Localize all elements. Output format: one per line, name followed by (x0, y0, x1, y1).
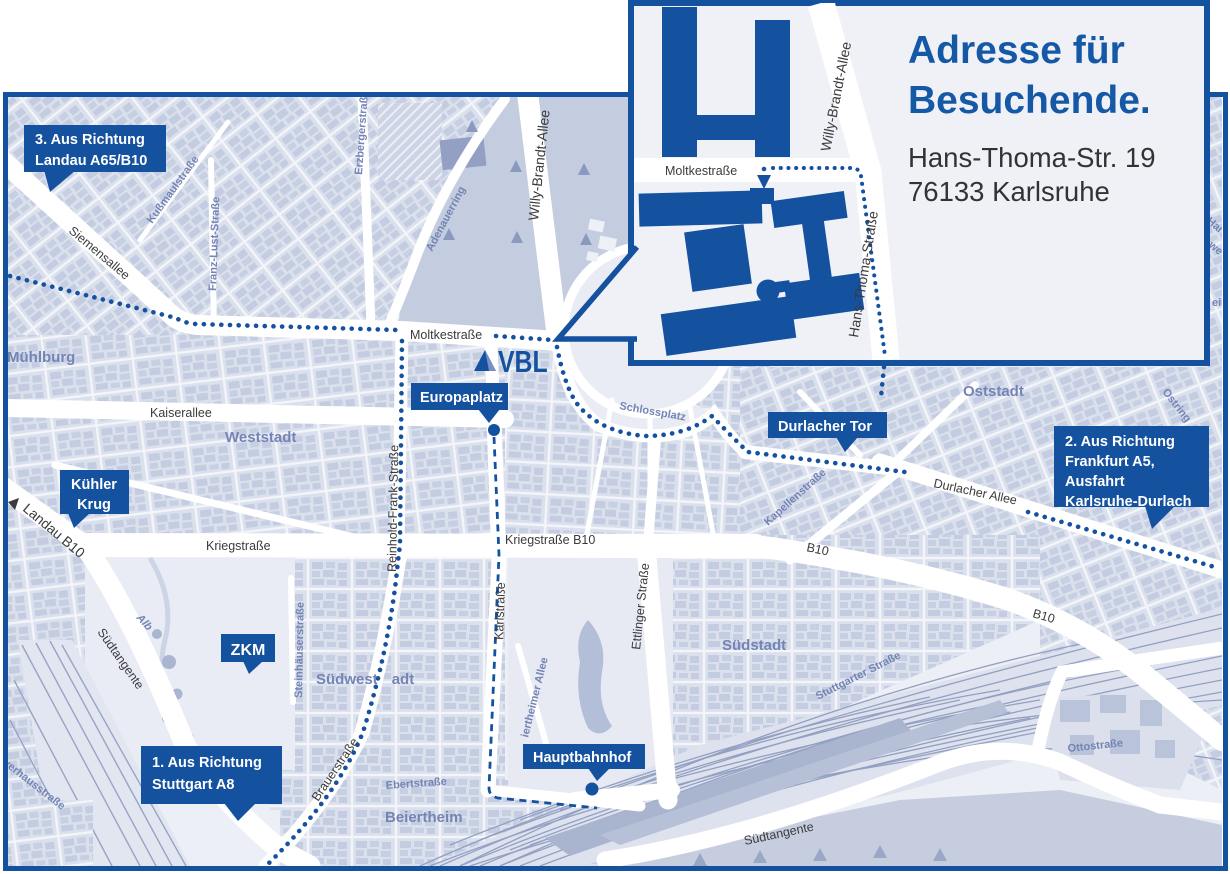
svg-text:Moltkestraße: Moltkestraße (410, 328, 482, 342)
svg-text:Frankfurt A5,: Frankfurt A5, (1065, 454, 1155, 470)
svg-text:1. Aus Richtung: 1. Aus Richtung (152, 755, 262, 771)
svg-text:Moltkestraße: Moltkestraße (665, 164, 737, 178)
svg-text:76133 Karlsruhe: 76133 Karlsruhe (908, 176, 1110, 207)
svg-text:Beiertheim: Beiertheim (385, 809, 463, 826)
svg-text:2. Aus Richtung: 2. Aus Richtung (1065, 434, 1175, 450)
svg-text:Kriegstraße B10: Kriegstraße B10 (505, 533, 595, 547)
svg-text:3. Aus Richtung: 3. Aus Richtung (35, 132, 145, 148)
svg-text:Krug: Krug (77, 497, 111, 513)
svg-text:Karlstraße: Karlstraße (492, 582, 508, 640)
svg-text:Kaiserallee: Kaiserallee (150, 406, 212, 420)
svg-text:Adresse für: Adresse für (908, 29, 1125, 72)
svg-text:Kühler: Kühler (71, 477, 117, 493)
svg-text:Südwestadt: Südwestadt (316, 671, 414, 688)
svg-text:Europaplatz: Europaplatz (420, 390, 503, 406)
svg-text:Ausfahrt: Ausfahrt (1065, 474, 1125, 490)
svg-text:Durlacher Tor: Durlacher Tor (778, 419, 872, 435)
svg-text:Stuttgart A8: Stuttgart A8 (152, 777, 234, 793)
svg-text:Oststadt: Oststadt (963, 383, 1024, 400)
svg-text:Südstadt: Südstadt (722, 637, 786, 654)
svg-text:Kriegstraße: Kriegstraße (206, 539, 271, 553)
svg-text:Karlsruhe-Durlach: Karlsruhe-Durlach (1065, 494, 1192, 510)
svg-text:Hauptbahnhof: Hauptbahnhof (533, 750, 631, 766)
svg-text:Weststadt: Weststadt (225, 429, 296, 446)
svg-text:Mühlburg: Mühlburg (7, 349, 75, 366)
svg-text:Reinhold-Frank-Straße: Reinhold-Frank-Straße (385, 445, 401, 572)
svg-text:Landau A65/B10: Landau A65/B10 (35, 153, 147, 169)
svg-text:ZKM: ZKM (231, 642, 266, 659)
svg-text:Besuchende.: Besuchende. (908, 79, 1151, 122)
svg-text:VBL: VBL (498, 344, 548, 378)
svg-text:Hans-Thoma-Str. 19: Hans-Thoma-Str. 19 (908, 142, 1156, 173)
svg-text:Steinhäuserstraße: Steinhäuserstraße (293, 602, 307, 698)
